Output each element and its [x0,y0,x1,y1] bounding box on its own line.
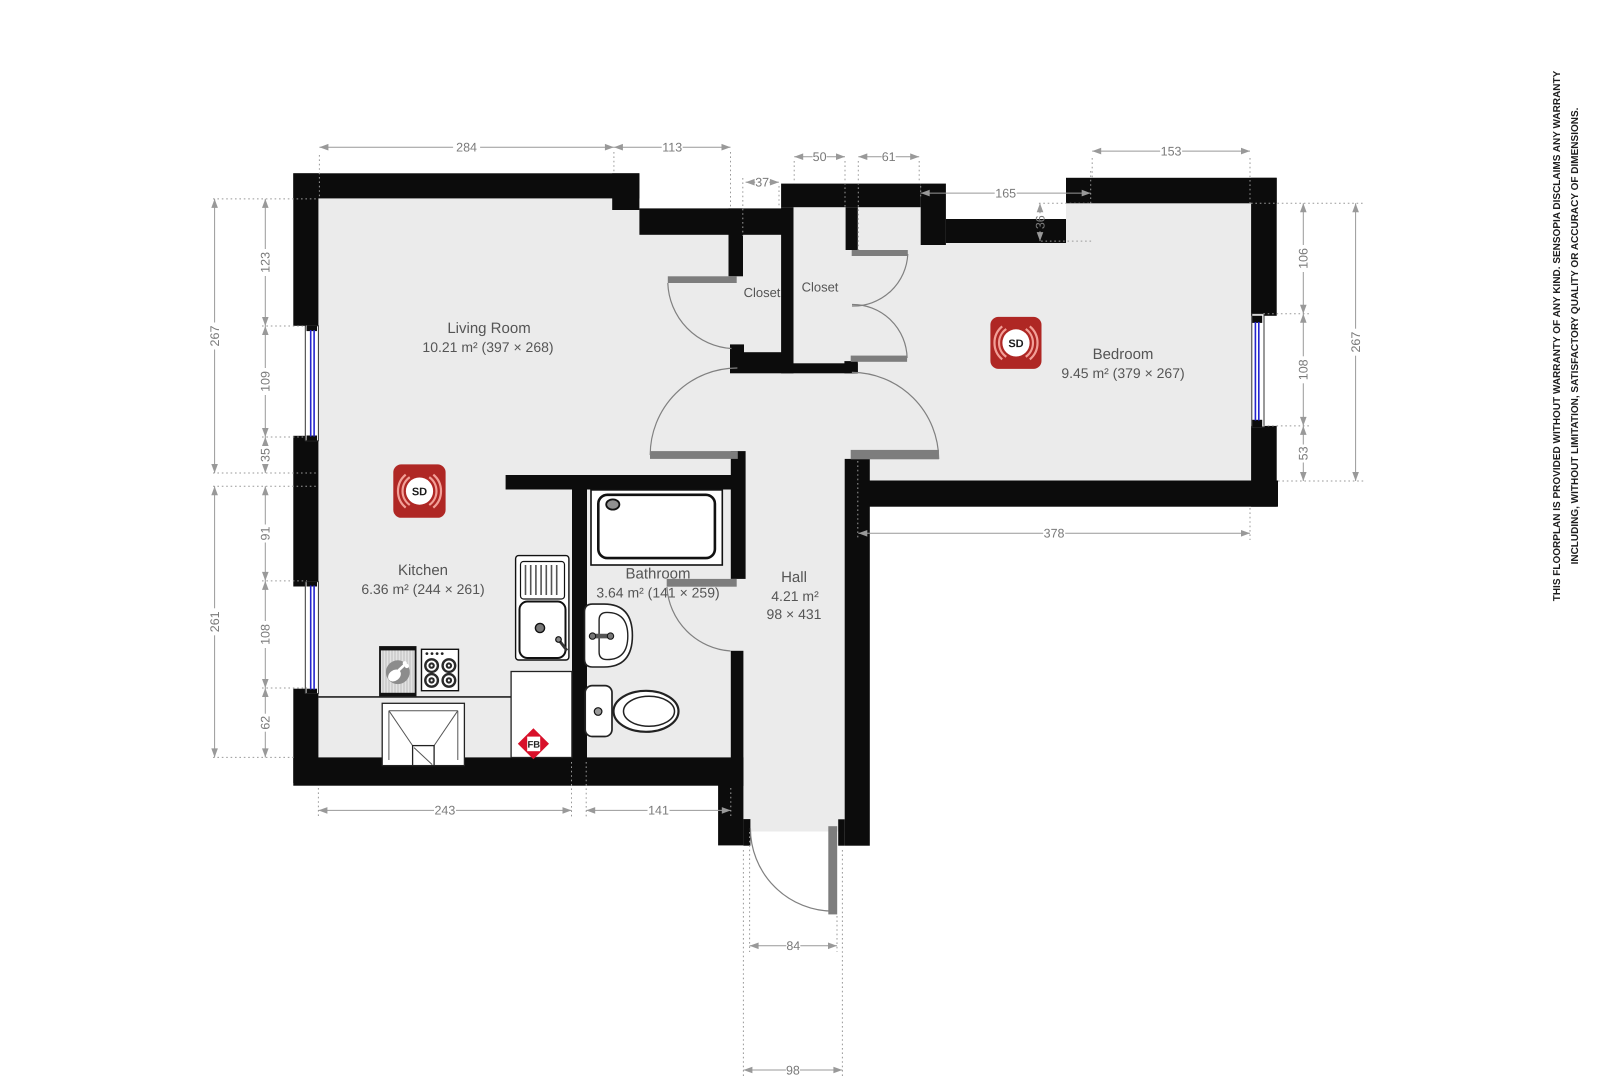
svg-text:Closet: Closet [744,285,781,300]
svg-text:62: 62 [259,716,273,730]
svg-text:267: 267 [208,326,222,347]
svg-text:165: 165 [995,186,1016,200]
svg-text:SD: SD [1008,338,1023,350]
svg-text:61: 61 [882,150,896,164]
svg-text:84: 84 [786,939,800,953]
svg-text:153: 153 [1161,144,1182,158]
svg-text:284: 284 [456,141,477,155]
svg-text:35: 35 [259,448,273,462]
svg-text:THIS FLOORPLAN IS PROVIDED WIT: THIS FLOORPLAN IS PROVIDED WITHOUT WARRA… [1552,70,1563,601]
svg-text:4.21 m²: 4.21 m² [771,588,819,604]
svg-text:FB: FB [527,740,540,751]
svg-text:98: 98 [786,1063,800,1077]
svg-text:9.45 m² (379 × 267): 9.45 m² (379 × 267) [1061,365,1184,381]
svg-text:91: 91 [259,527,273,541]
svg-text:Bedroom: Bedroom [1093,346,1154,363]
svg-text:267: 267 [1349,332,1363,353]
svg-text:36: 36 [1033,215,1047,229]
svg-text:SD: SD [412,486,427,498]
svg-text:Living Room: Living Room [447,320,530,337]
svg-text:113: 113 [662,141,682,155]
svg-text:Closet: Closet [802,280,839,295]
svg-text:50: 50 [813,150,827,164]
svg-text:3.64 m² (141 × 259): 3.64 m² (141 × 259) [596,585,719,601]
svg-text:108: 108 [259,624,273,645]
svg-text:108: 108 [1297,359,1311,380]
svg-text:378: 378 [1044,527,1065,541]
svg-text:123: 123 [259,252,273,273]
svg-text:6.36 m² (244 × 261): 6.36 m² (244 × 261) [361,581,484,597]
svg-text:243: 243 [434,804,455,818]
svg-text:106: 106 [1297,248,1311,269]
svg-text:261: 261 [208,611,222,632]
svg-text:Kitchen: Kitchen [398,562,448,579]
svg-text:Bathroom: Bathroom [625,566,690,583]
svg-text:98 × 431: 98 × 431 [767,606,822,622]
svg-text:10.21 m² (397 × 268): 10.21 m² (397 × 268) [422,339,553,355]
svg-text:37: 37 [755,176,769,190]
svg-text:141: 141 [648,804,669,818]
svg-text:INCLUDING, WITHOUT LIMITATION,: INCLUDING, WITHOUT LIMITATION, SATISFACT… [1570,107,1581,564]
svg-text:53: 53 [1297,446,1311,460]
svg-text:109: 109 [259,371,273,392]
svg-text:Hall: Hall [781,569,807,586]
